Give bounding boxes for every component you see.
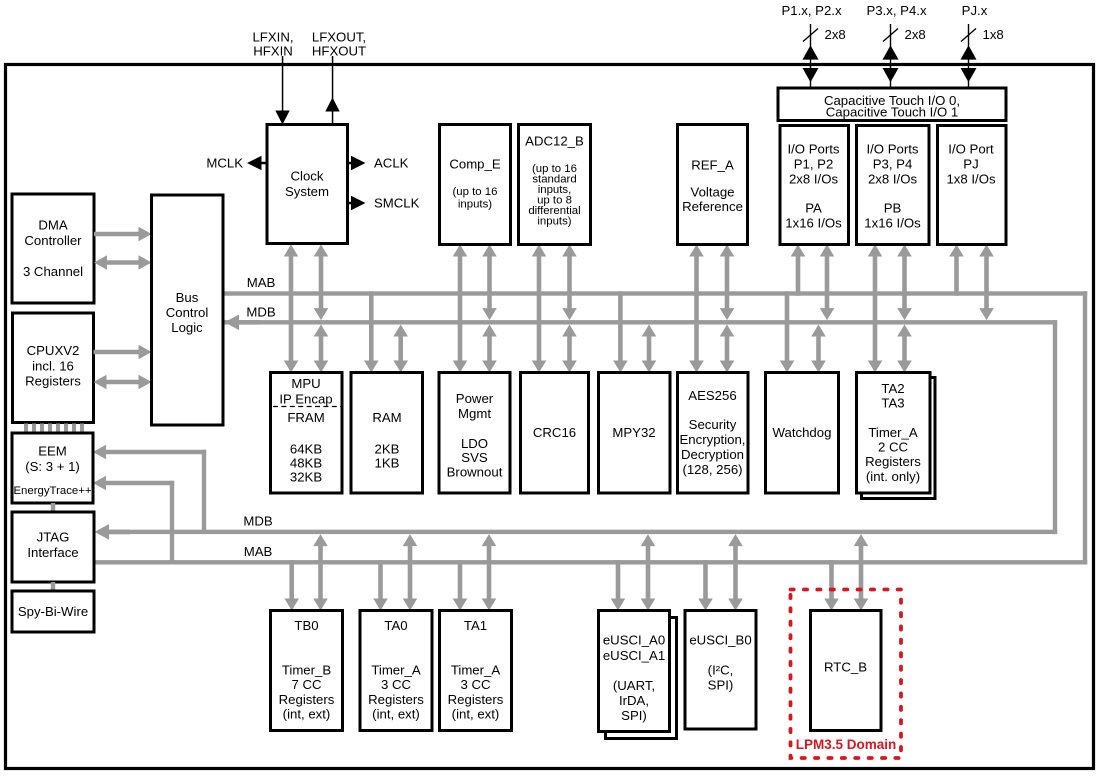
svg-text:EEM: EEM	[38, 444, 67, 459]
svg-text:incl. 16: incl. 16	[32, 359, 74, 374]
svg-text:TA3: TA3	[881, 396, 904, 411]
svg-text:MDB: MDB	[243, 514, 273, 529]
svg-text:Logic: Logic	[171, 320, 203, 335]
svg-text:Encryption,: Encryption,	[680, 432, 746, 447]
svg-text:MAB: MAB	[247, 275, 276, 290]
svg-text:P3.x, P4.x: P3.x, P4.x	[866, 3, 927, 18]
svg-text:LPM3.5 Domain: LPM3.5 Domain	[796, 737, 897, 752]
svg-text:(128, 256): (128, 256)	[682, 462, 742, 477]
svg-text:1x16 I/Os: 1x16 I/Os	[785, 216, 842, 231]
svg-text:3 Channel: 3 Channel	[23, 264, 83, 279]
svg-text:48KB: 48KB	[290, 456, 322, 471]
svg-text:MCLK: MCLK	[206, 156, 243, 171]
svg-text:Controller: Controller	[24, 233, 82, 248]
svg-text:TB0: TB0	[294, 618, 318, 633]
svg-text:2x8 I/Os: 2x8 I/Os	[868, 172, 918, 187]
svg-text:Mgmt: Mgmt	[458, 406, 491, 421]
svg-text:Security: Security	[689, 417, 737, 432]
svg-text:P3, P4: P3, P4	[873, 157, 913, 172]
svg-text:I/O Port: I/O Port	[948, 142, 994, 157]
svg-text:Registers: Registers	[865, 454, 921, 469]
svg-text:2 CC: 2 CC	[878, 440, 909, 455]
svg-text:64KB: 64KB	[290, 442, 322, 457]
svg-text:3 CC: 3 CC	[381, 677, 412, 692]
svg-text:Spy-Bi-Wire: Spy-Bi-Wire	[18, 604, 88, 619]
svg-text:IrDA,: IrDA,	[619, 693, 649, 708]
svg-text:Capacitive Touch I/O 1: Capacitive Touch I/O 1	[826, 105, 958, 120]
svg-text:1x8: 1x8	[983, 27, 1004, 42]
svg-text:LFXIN,: LFXIN,	[252, 30, 293, 45]
svg-text:TA1: TA1	[464, 618, 487, 633]
svg-text:3 CC: 3 CC	[460, 677, 491, 692]
svg-text:TA2: TA2	[881, 381, 904, 396]
svg-text:LDO: LDO	[461, 436, 488, 451]
svg-text:MDB: MDB	[246, 305, 276, 320]
svg-text:Power: Power	[456, 391, 494, 406]
svg-text:HFXIN: HFXIN	[253, 44, 293, 59]
svg-text:PB: PB	[884, 201, 902, 216]
svg-text:eUSCI_B0: eUSCI_B0	[689, 633, 751, 648]
svg-text:SVS: SVS	[461, 450, 488, 465]
svg-text:(int, ext): (int, ext)	[372, 707, 420, 722]
svg-text:inputs): inputs)	[537, 216, 571, 228]
svg-text:(I²C,: (I²C,	[708, 663, 734, 678]
svg-text:1x16 I/Os: 1x16 I/Os	[864, 216, 921, 231]
svg-text:inputs): inputs)	[458, 199, 492, 211]
svg-text:DMA: DMA	[38, 218, 68, 233]
svg-text:Registers: Registers	[25, 374, 81, 389]
svg-text:Comp_E: Comp_E	[449, 157, 501, 172]
svg-text:SMCLK: SMCLK	[374, 196, 420, 211]
svg-text:I/O Ports: I/O Ports	[866, 142, 918, 157]
svg-text:MAB: MAB	[244, 544, 273, 559]
svg-text:Voltage: Voltage	[691, 185, 735, 200]
svg-text:REF_A: REF_A	[691, 158, 734, 173]
svg-text:AES256: AES256	[688, 388, 736, 403]
svg-text:(int, ext): (int, ext)	[452, 707, 500, 722]
svg-text:JTAG: JTAG	[37, 530, 70, 545]
svg-text:Timer_B: Timer_B	[282, 663, 332, 678]
svg-text:Timer_A: Timer_A	[868, 425, 918, 440]
svg-text:7 CC: 7 CC	[291, 677, 322, 692]
svg-text:eUSCI_A0: eUSCI_A0	[603, 633, 665, 648]
svg-text:RTC_B: RTC_B	[824, 660, 867, 675]
svg-text:P1.x, P2.x: P1.x, P2.x	[781, 3, 842, 18]
svg-text:Timer_A: Timer_A	[371, 663, 421, 678]
svg-text:CRC16: CRC16	[533, 425, 576, 440]
svg-text:SPI): SPI)	[621, 708, 647, 723]
svg-text:Brownout: Brownout	[447, 465, 503, 480]
svg-text:Watchdog: Watchdog	[773, 425, 832, 440]
svg-text:IP Encap: IP Encap	[279, 392, 332, 407]
svg-text:Control: Control	[166, 305, 209, 320]
svg-text:Timer_A: Timer_A	[451, 663, 501, 678]
svg-text:2x8: 2x8	[905, 27, 926, 42]
svg-text:Clock: Clock	[291, 169, 324, 184]
svg-text:1x8 I/Os: 1x8 I/Os	[946, 172, 996, 187]
svg-text:32KB: 32KB	[290, 470, 322, 485]
svg-text:MPU: MPU	[291, 376, 320, 391]
svg-text:LFXOUT,: LFXOUT,	[312, 30, 366, 45]
svg-text:2KB: 2KB	[375, 442, 400, 457]
svg-text:TA0: TA0	[384, 618, 407, 633]
svg-text:PJ.x: PJ.x	[962, 3, 988, 18]
svg-text:Interface: Interface	[27, 545, 78, 560]
svg-text:FRAM: FRAM	[287, 410, 324, 425]
svg-text:MPY32: MPY32	[612, 425, 655, 440]
svg-text:Registers: Registers	[279, 692, 335, 707]
svg-text:Registers: Registers	[448, 692, 504, 707]
svg-text:(int. only): (int. only)	[866, 469, 920, 484]
svg-text:ACLK: ACLK	[374, 156, 409, 171]
svg-text:RAM: RAM	[372, 410, 401, 425]
svg-text:CPUXV2: CPUXV2	[27, 343, 80, 358]
svg-text:eUSCI_A1: eUSCI_A1	[603, 648, 665, 663]
svg-text:PA: PA	[805, 201, 822, 216]
svg-text:SPI): SPI)	[708, 678, 734, 693]
svg-text:I/O Ports: I/O Ports	[787, 142, 839, 157]
svg-text:2x8 I/Os: 2x8 I/Os	[789, 172, 839, 187]
svg-text:2x8: 2x8	[825, 27, 846, 42]
svg-text:Registers: Registers	[368, 692, 424, 707]
svg-text:Decryption: Decryption	[681, 447, 744, 462]
svg-text:Bus: Bus	[176, 290, 199, 305]
svg-text:Reference: Reference	[682, 199, 743, 214]
svg-text:(int, ext): (int, ext)	[283, 707, 331, 722]
svg-text:(up to 16: (up to 16	[453, 186, 498, 198]
svg-text:P1, P2: P1, P2	[794, 157, 834, 172]
svg-text:EnergyTrace++: EnergyTrace++	[13, 485, 91, 497]
svg-text:ADC12_B: ADC12_B	[525, 134, 584, 149]
svg-text:1KB: 1KB	[375, 456, 400, 471]
svg-text:System: System	[285, 184, 329, 199]
svg-text:PJ: PJ	[963, 157, 978, 172]
svg-text:(S: 3 + 1): (S: 3 + 1)	[25, 459, 80, 474]
svg-text:HFXOUT: HFXOUT	[312, 44, 366, 59]
svg-text:(UART,: (UART,	[613, 678, 655, 693]
